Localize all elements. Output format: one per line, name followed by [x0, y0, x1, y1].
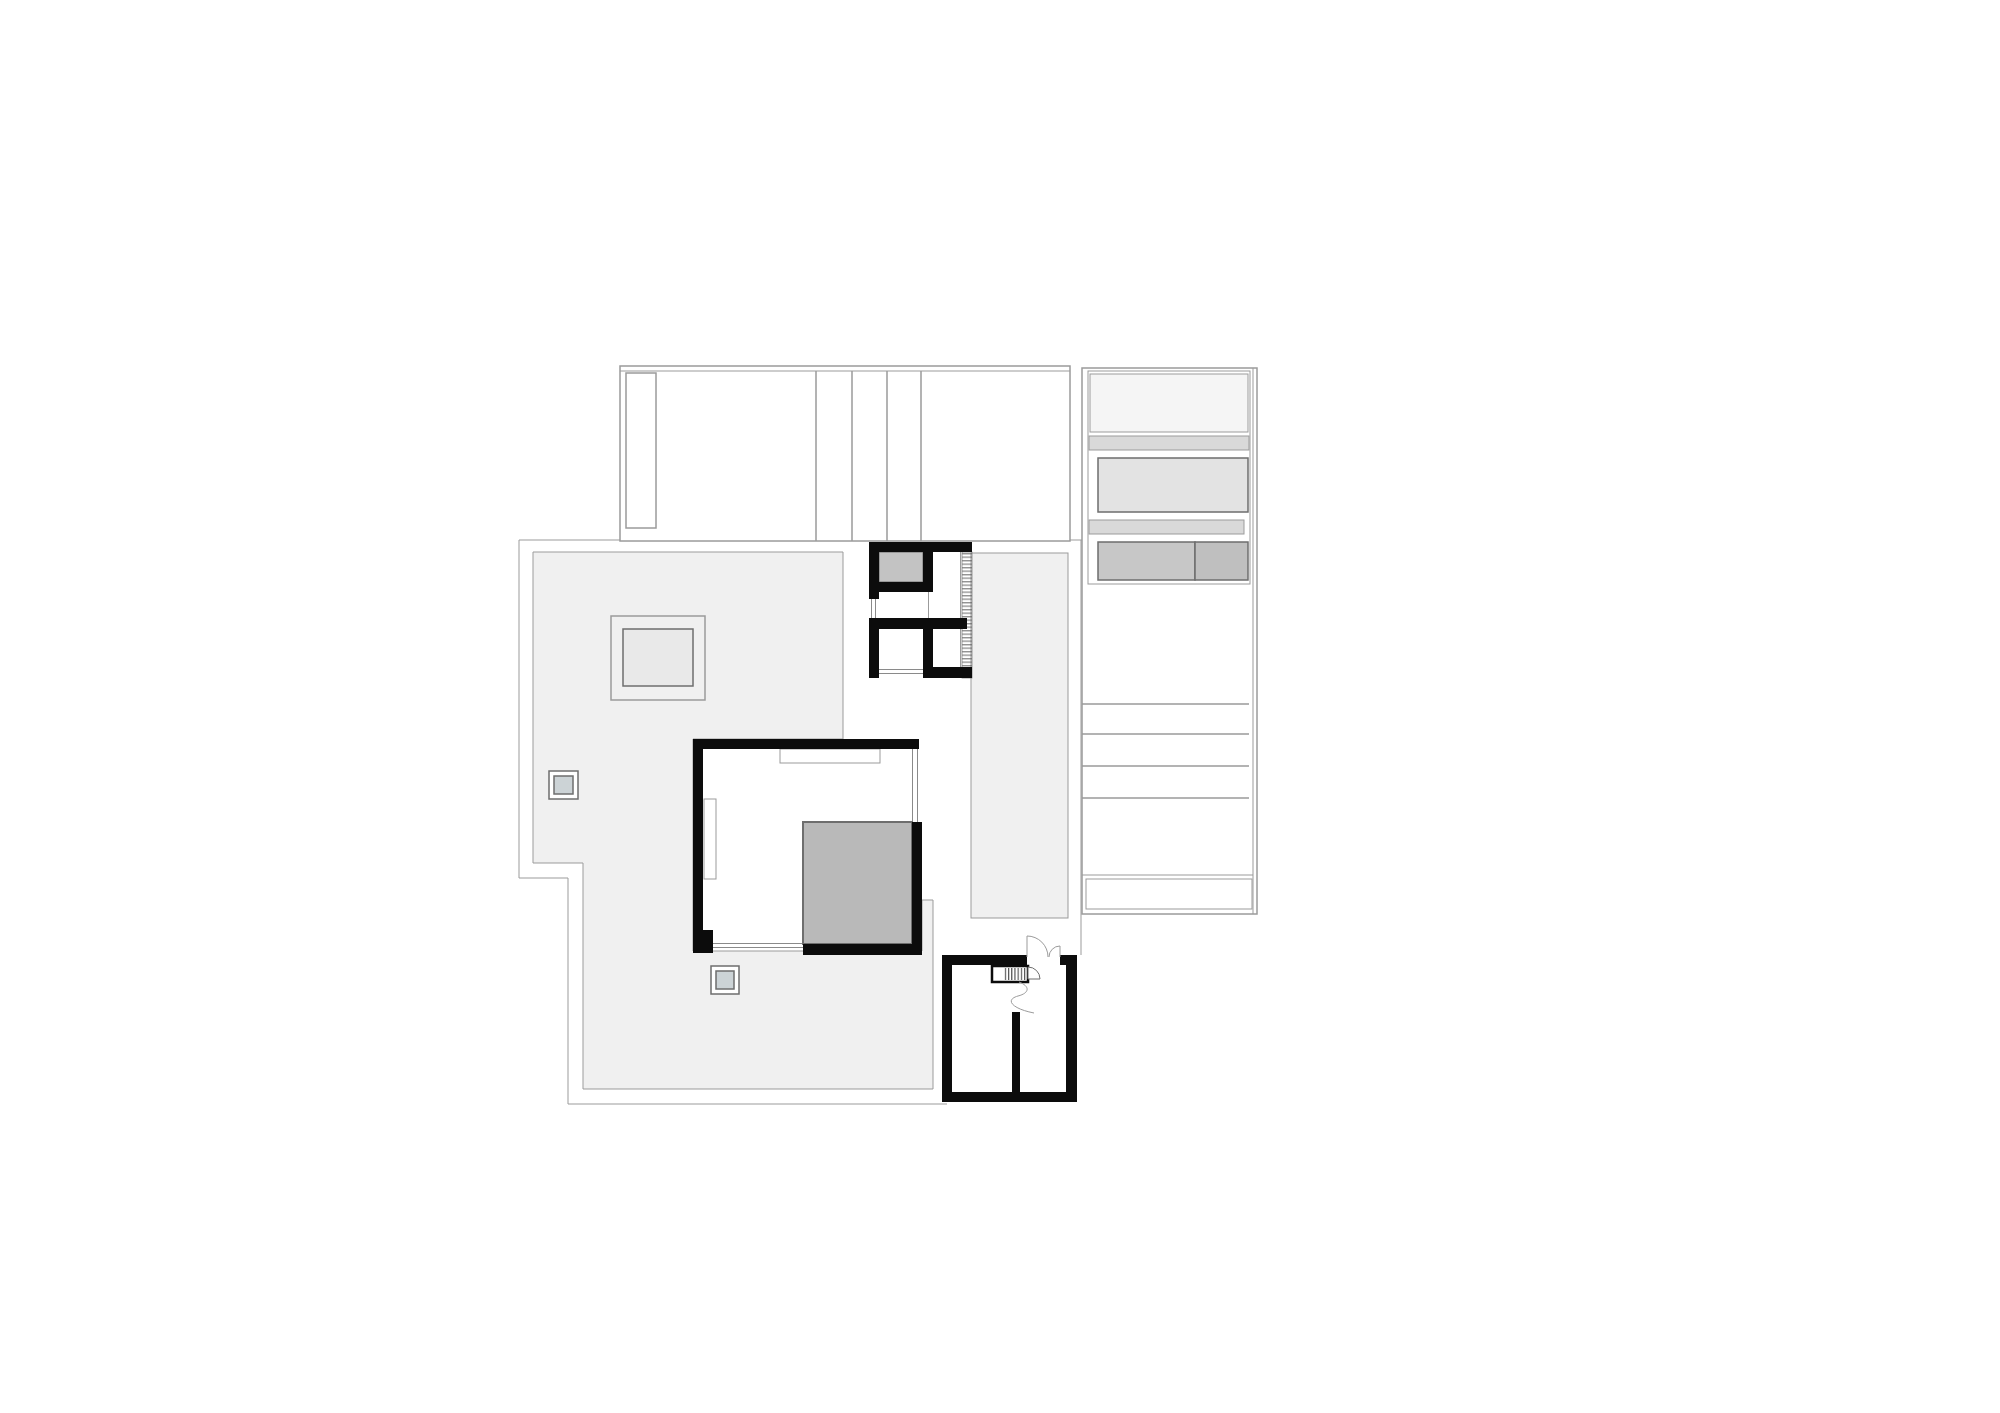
living-room-wall-left	[693, 749, 703, 930]
garage-strip-2	[1089, 520, 1244, 534]
garage-block-bottom-left	[1098, 542, 1195, 580]
stair-core	[803, 822, 912, 944]
floor-plan-canvas	[0, 0, 2000, 1413]
bathroom-glazing-south	[879, 670, 923, 674]
roof-drain-west-grate	[554, 776, 573, 794]
entrance-wall-right	[1066, 955, 1077, 1102]
bathroom-wall-mid-vertical	[923, 618, 933, 667]
living-room-glazing-east	[913, 749, 918, 822]
double-door-swing-small	[1049, 946, 1060, 957]
bathroom-wall-grayroom-bottom	[869, 582, 933, 592]
entrance-door-leaf	[1028, 967, 1040, 979]
living-room-wall-bottom	[803, 944, 922, 955]
entrance-stair-unit	[992, 966, 1028, 982]
bathroom-thin-partitions	[929, 552, 961, 667]
bathroom-window-west	[872, 599, 876, 621]
garage-block-middle	[1098, 458, 1248, 512]
roof-drain-south-grate	[716, 971, 734, 989]
upper-wing-outline	[620, 366, 1070, 541]
living-room-glazing-south	[713, 944, 803, 948]
upper-wing	[620, 366, 1070, 541]
bathroom-block	[869, 542, 972, 678]
bathroom-wall-mid-horizontal	[869, 618, 967, 629]
carport-bottom-planter	[1086, 879, 1252, 909]
garage-strip-1	[1089, 436, 1249, 450]
stair-rail-hatch	[962, 552, 972, 678]
bathroom-gray-room	[879, 552, 923, 582]
entrance-wall-top-left	[942, 955, 1027, 965]
skylight-glass	[623, 629, 693, 686]
upper-wing-left-pier	[626, 373, 656, 528]
entrance-partition	[1012, 1012, 1020, 1092]
carport-step-lines	[1082, 704, 1249, 798]
living-room-wall-right	[912, 822, 922, 955]
living-room	[693, 739, 922, 955]
garage-block-top	[1090, 374, 1248, 432]
double-door-swing-large	[1027, 936, 1048, 957]
entrance-stair-treads	[1004, 968, 1026, 980]
interior-door-swing	[1011, 982, 1034, 1013]
living-room-wall-element	[704, 799, 716, 879]
roof-drain-south	[711, 966, 739, 994]
bathroom-wall-bottom-right	[923, 667, 972, 678]
corridor	[971, 553, 1068, 918]
corridor-surface	[971, 553, 1068, 918]
living-room-wardrobe	[780, 749, 880, 763]
carport-wing	[1082, 368, 1257, 914]
living-room-wall-left-stub	[693, 930, 713, 953]
entrance-wall-bottom	[942, 1092, 1077, 1102]
living-room-wall-top	[693, 739, 919, 749]
page: { "document": { "kind": "architectural f…	[0, 0, 2000, 1413]
bathroom-wall-left-lower	[869, 621, 879, 678]
roof-drain-west	[549, 771, 578, 799]
bathroom-wall-top	[869, 542, 972, 552]
upper-wing-partition-lines	[816, 371, 921, 541]
entrance-wall-left	[942, 955, 952, 1102]
garage-block-bottom-right	[1195, 542, 1248, 580]
entrance-room	[942, 936, 1077, 1102]
